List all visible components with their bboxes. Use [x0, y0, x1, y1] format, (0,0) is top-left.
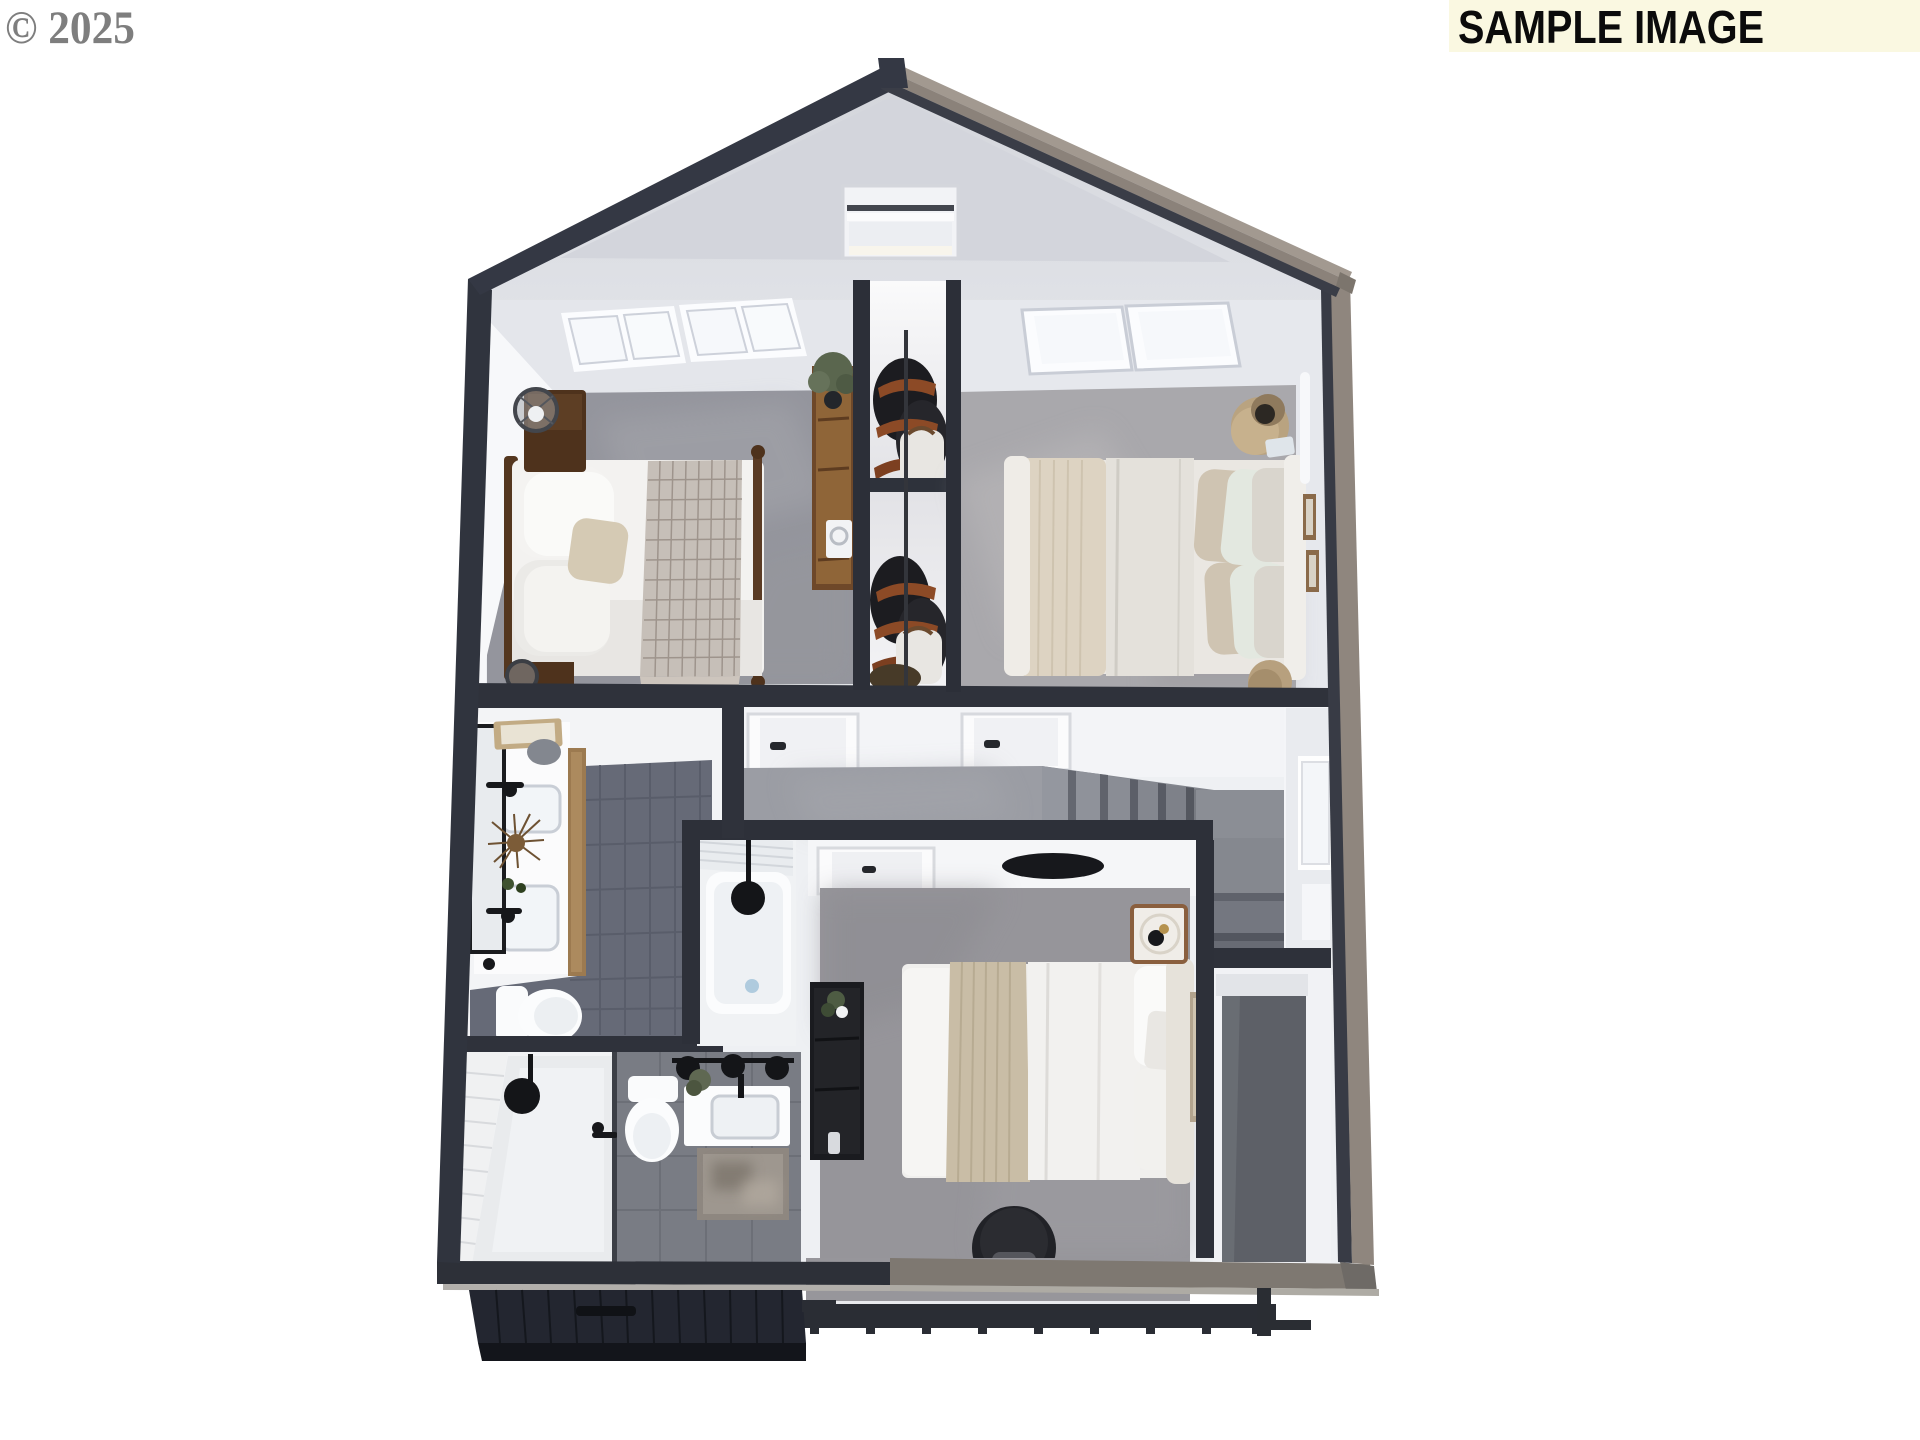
svg-text:© 2025: © 2025 [5, 2, 135, 54]
svg-text:SAMPLE IMAGE: SAMPLE IMAGE [1458, 1, 1764, 53]
